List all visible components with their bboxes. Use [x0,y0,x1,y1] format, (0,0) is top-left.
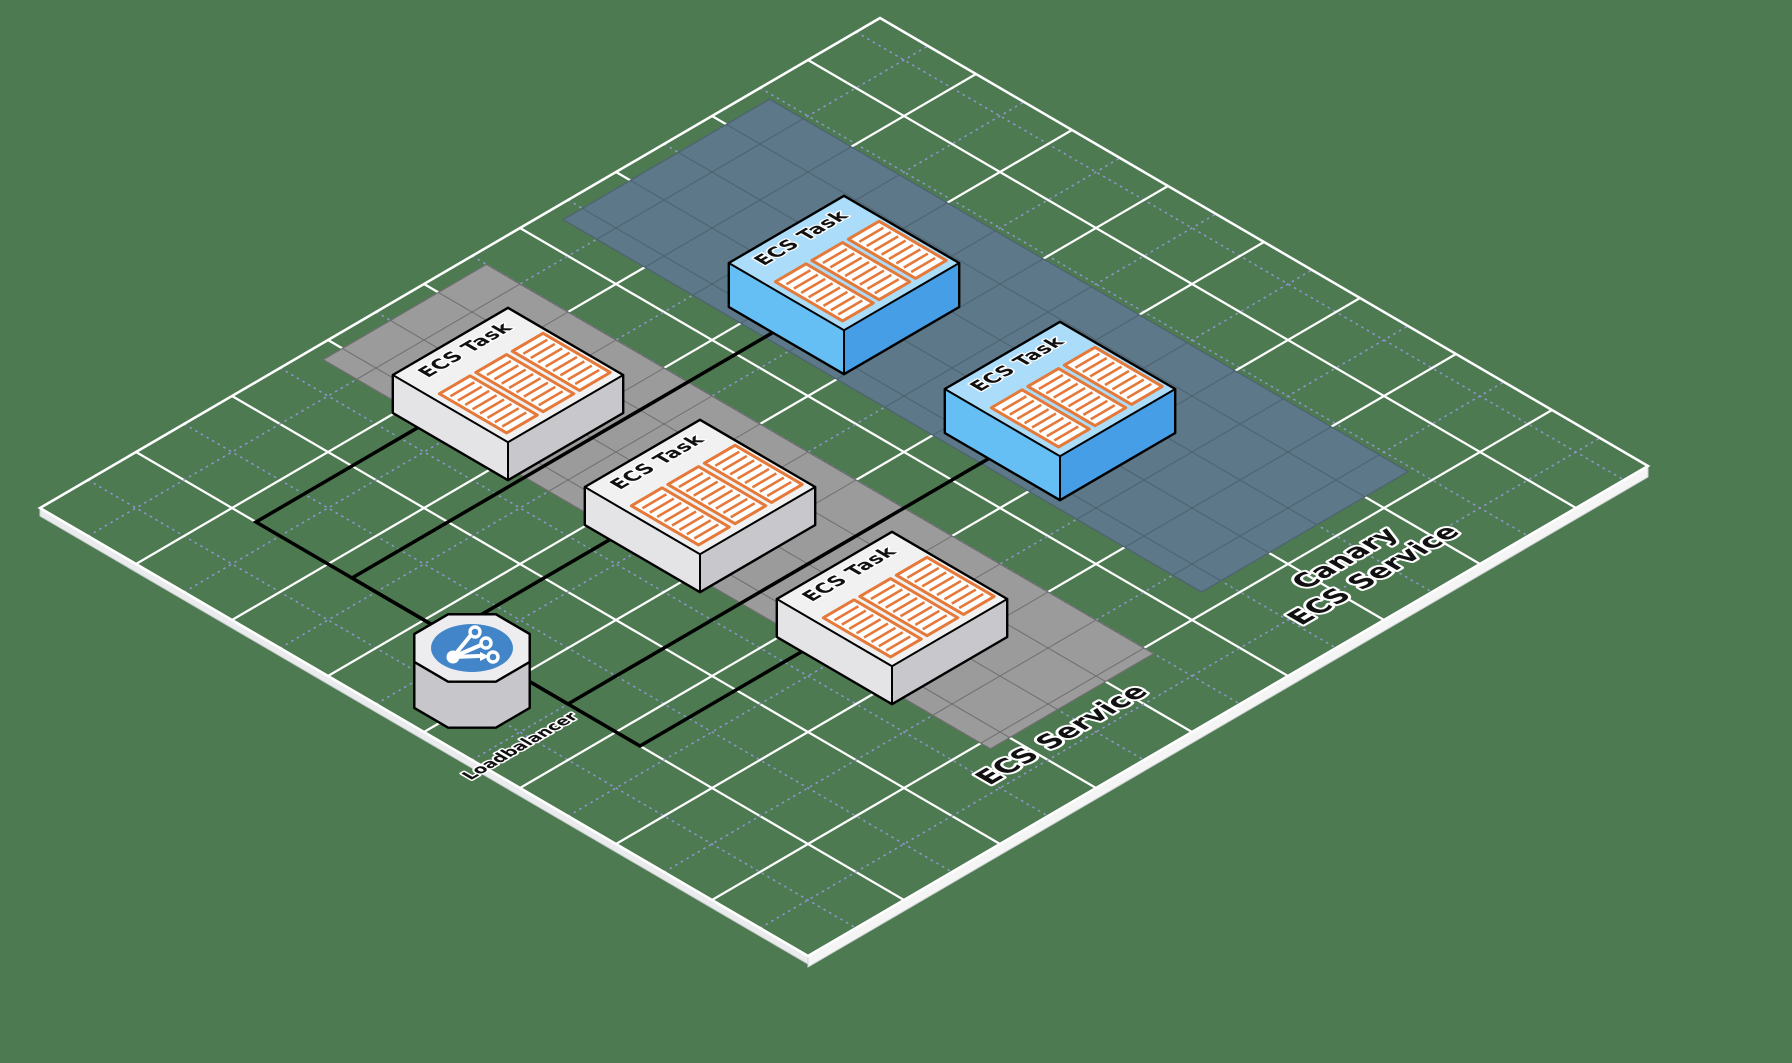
load-balancer-branch-icon [431,624,513,672]
diagram-canvas: ECS TaskECS TaskECS TaskECS TaskECS Task… [0,0,1792,1063]
